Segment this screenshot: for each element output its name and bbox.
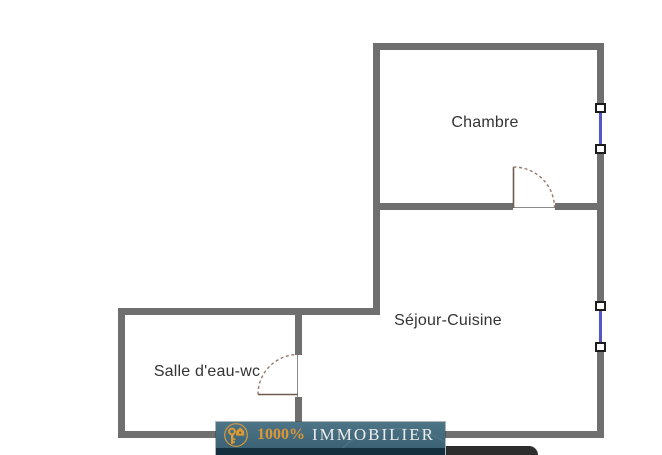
wall-top — [373, 43, 604, 50]
wall-divider-left — [373, 203, 513, 210]
watermark-brand-text: IMMOBILIER — [312, 425, 435, 445]
watermark-percent-text: 1000% — [257, 426, 305, 444]
wall-bathroom-top — [118, 308, 380, 315]
room-label-chambre: Chambre — [380, 114, 590, 132]
window-glass — [599, 112, 602, 145]
window-glass — [599, 310, 602, 343]
window-frame-bottom — [595, 342, 606, 352]
wall-bathroom-left — [118, 308, 125, 438]
chambre-door-icon — [512, 166, 558, 210]
room-label-salle-eau-wc: Salle d'eau-wc — [127, 363, 287, 381]
window-frame-top — [595, 103, 606, 113]
window-frame-top — [595, 301, 606, 311]
wall-divider-right — [555, 203, 604, 210]
wall-left-upper — [373, 43, 380, 315]
banner-bottom-strip — [216, 448, 445, 455]
window-frame-bottom — [595, 144, 606, 154]
wall-bathroom-right-upper — [295, 315, 302, 355]
floor-plan: Chambre Séjour-Cuisine Salle d'eau-wc 10… — [0, 0, 662, 455]
agency-watermark: 1000% IMMOBILIER — [216, 422, 445, 455]
sejour-window-icon — [594, 301, 607, 352]
room-label-sejour-cuisine: Séjour-Cuisine — [373, 312, 523, 330]
chambre-window-icon — [594, 103, 607, 154]
cropped-dark-bar — [446, 446, 538, 455]
banner-content: 1000% IMMOBILIER — [216, 422, 435, 448]
key-house-logo-icon — [223, 422, 249, 448]
